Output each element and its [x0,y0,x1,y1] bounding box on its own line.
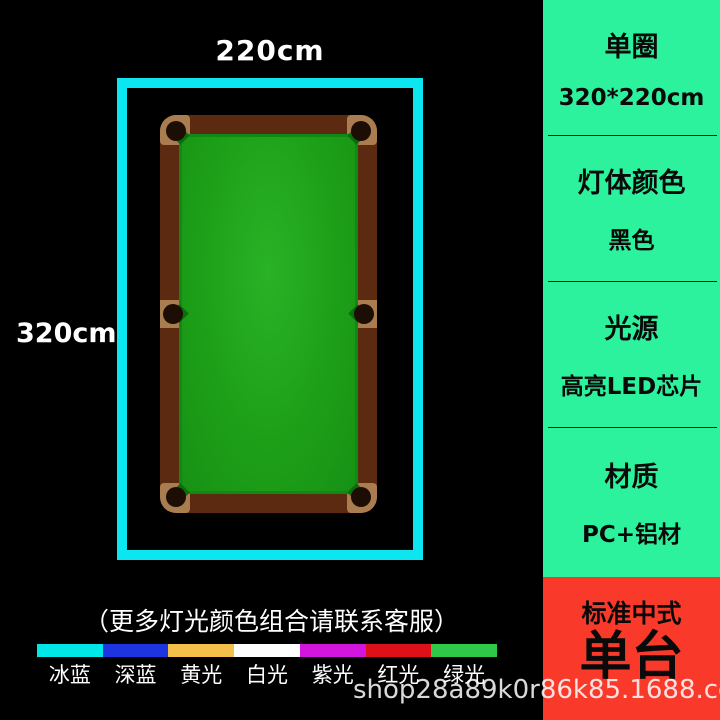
promo-style-label: 标准中式 [581,594,681,630]
swatch-label: 冰蓝 [37,661,103,689]
swatch-ice-blue [37,644,103,657]
light-color-bar [37,644,497,657]
spec-title: 单圈 [605,25,659,64]
swatch-yellow [168,644,234,657]
spec-value: 高亮LED芯片 [561,367,702,401]
swatch-label: 黄光 [168,661,234,689]
pocket [351,487,371,507]
spec-section-ring: 单圈 320*220cm [543,0,720,135]
spec-title: 光源 [605,307,659,346]
spec-value: 黑色 [609,221,655,255]
swatch-purple [300,644,366,657]
pocket [166,121,186,141]
swatch-white [234,644,300,657]
product-image: 220cm 320cm （更多灯光颜色组合请联系客服） [0,0,720,720]
pool-table [160,115,377,513]
note-text: （更多灯光颜色组合请联系客服） [0,602,543,638]
spec-section-material: 材质 PC+铝材 [543,428,720,577]
pocket [166,487,186,507]
spec-sidebar: 单圈 320*220cm 灯体颜色 黑色 光源 高亮LED芯片 材质 PC+铝材 [543,0,720,577]
spec-section-body-color: 灯体颜色 黑色 [543,136,720,280]
swatch-green [431,644,497,657]
pocket [163,304,183,324]
height-dimension-label: 320cm [16,318,104,349]
swatch-label: 白光 [234,661,300,689]
spec-section-light-source: 光源 高亮LED芯片 [543,282,720,427]
spec-value: PC+铝材 [582,515,681,549]
swatch-red [366,644,432,657]
swatch-label: 深蓝 [103,661,169,689]
spec-title: 材质 [605,455,659,494]
width-dimension-label: 220cm [117,34,423,67]
spec-title: 灯体颜色 [578,161,686,200]
table-felt [179,134,358,494]
pocket [354,304,374,324]
swatch-deep-blue [103,644,169,657]
spec-value: 320*220cm [559,85,705,111]
watermark: shop28a89k0r86k85.1688.com [353,675,720,705]
pocket [351,121,371,141]
